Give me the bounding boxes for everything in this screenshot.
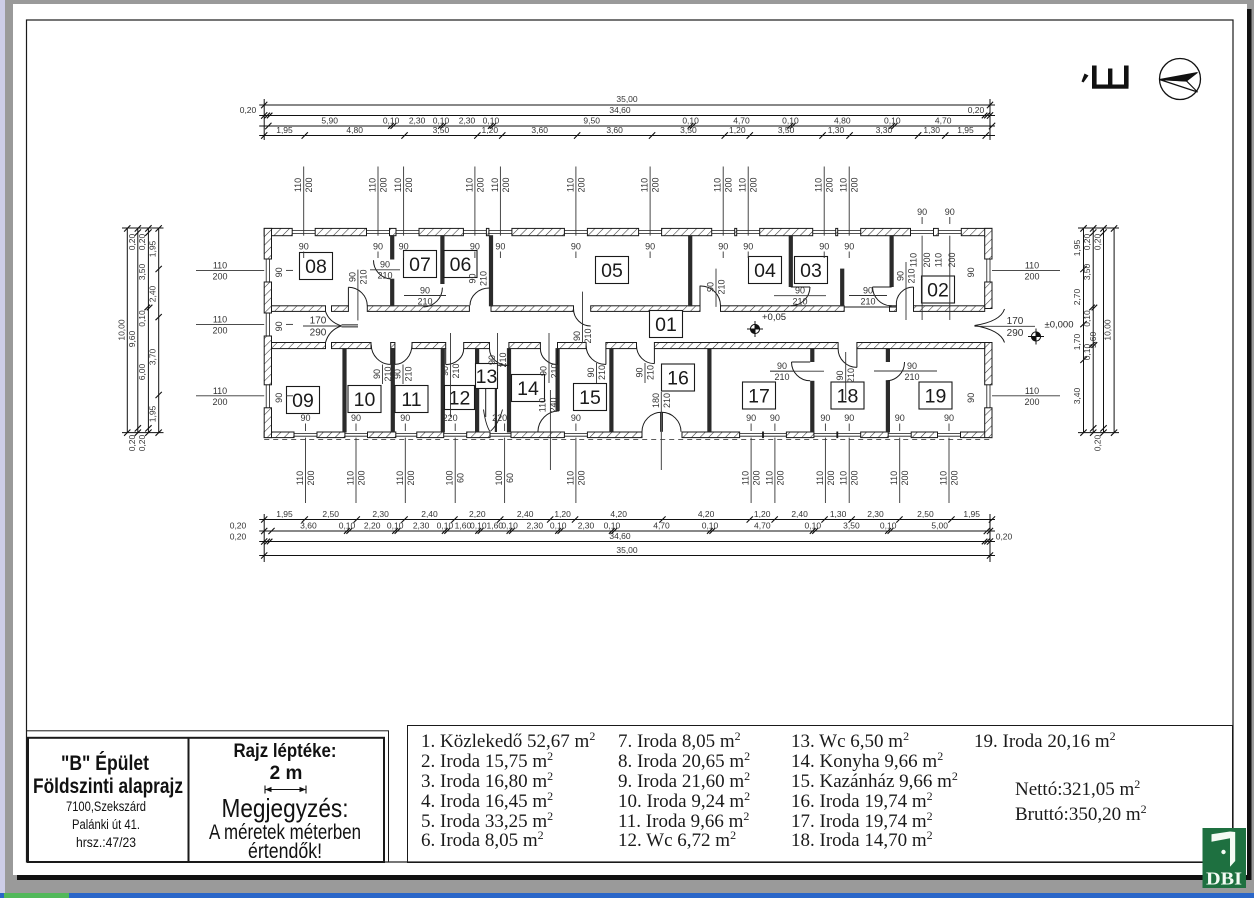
svg-text:2,50: 2,50: [322, 509, 339, 519]
svg-text:02: 02: [927, 280, 949, 302]
svg-text:14: 14: [517, 378, 539, 400]
svg-text:210: 210: [479, 271, 489, 286]
svg-text:210: 210: [583, 328, 593, 343]
svg-text:19. Iroda 20,16 m2: 19. Iroda 20,16 m2: [974, 729, 1116, 752]
svg-text:4,70: 4,70: [935, 115, 952, 125]
svg-text:0,10: 0,10: [682, 115, 699, 125]
svg-text:04: 04: [754, 260, 776, 282]
svg-text:0,10: 0,10: [604, 520, 621, 530]
svg-text:1,20: 1,20: [754, 509, 771, 519]
svg-text:03: 03: [800, 260, 822, 282]
svg-text:60: 60: [456, 473, 466, 483]
svg-text:12: 12: [449, 388, 471, 410]
svg-text:100: 100: [445, 470, 455, 485]
svg-text:3,50: 3,50: [778, 125, 795, 135]
svg-text:0,10: 0,10: [1082, 310, 1092, 327]
svg-text:200: 200: [724, 177, 734, 192]
svg-text:3,50: 3,50: [137, 263, 147, 280]
svg-text:4,70: 4,70: [653, 520, 670, 530]
svg-text:200: 200: [306, 470, 316, 485]
svg-text:1,30: 1,30: [830, 509, 847, 519]
svg-text:1,60: 1,60: [455, 520, 472, 530]
svg-text:4,70: 4,70: [754, 520, 771, 530]
svg-text:180: 180: [651, 393, 661, 408]
svg-text:90: 90: [844, 242, 854, 252]
svg-text:2,30: 2,30: [527, 520, 544, 530]
svg-text:0,20: 0,20: [127, 434, 137, 451]
svg-text:DBI: DBI: [1206, 869, 1242, 889]
svg-text:07: 07: [409, 254, 431, 276]
svg-text:9,60: 9,60: [127, 330, 137, 347]
svg-text:90: 90: [468, 273, 478, 283]
svg-text:0,20: 0,20: [1082, 233, 1092, 250]
svg-text:0,20: 0,20: [137, 233, 147, 250]
svg-text:2,30: 2,30: [413, 520, 430, 530]
svg-text:7. Iroda 8,05 m2: 7. Iroda 8,05 m2: [618, 729, 741, 752]
svg-text:2,30: 2,30: [409, 115, 426, 125]
svg-text:90: 90: [835, 370, 845, 380]
svg-text:2,30: 2,30: [867, 509, 884, 519]
svg-text:90: 90: [300, 413, 310, 423]
svg-text:110: 110: [909, 253, 919, 267]
svg-text:9,60: 9,60: [1088, 331, 1098, 348]
svg-text:12. Wc 6,72 m2: 12. Wc 6,72 m2: [618, 828, 736, 851]
svg-text:200: 200: [475, 177, 485, 192]
svg-text:200: 200: [752, 470, 762, 485]
svg-text:Palánki út 41.: Palánki út 41.: [72, 817, 140, 832]
svg-text:110: 110: [538, 398, 548, 412]
svg-text:90: 90: [470, 242, 480, 252]
svg-text:0,20: 0,20: [968, 105, 985, 115]
svg-text:110: 110: [741, 471, 751, 485]
svg-text:1,70: 1,70: [1072, 333, 1082, 350]
svg-text:210: 210: [550, 363, 560, 378]
svg-text:3,60: 3,60: [531, 125, 548, 135]
svg-text:110: 110: [839, 178, 849, 192]
svg-text:1,95: 1,95: [963, 509, 980, 519]
svg-text:09: 09: [292, 390, 314, 412]
svg-text:90: 90: [572, 331, 582, 341]
svg-text:200: 200: [357, 470, 367, 485]
svg-text:200: 200: [1024, 271, 1039, 281]
svg-text:90: 90: [844, 413, 854, 423]
svg-text:0,20: 0,20: [240, 105, 257, 115]
svg-text:16: 16: [667, 368, 689, 390]
svg-text:1,20: 1,20: [482, 125, 499, 135]
svg-text:11: 11: [401, 389, 421, 411]
svg-text:1,30: 1,30: [828, 125, 845, 135]
svg-text:90: 90: [795, 286, 805, 296]
svg-text:200: 200: [212, 271, 227, 281]
svg-text:90: 90: [895, 413, 905, 423]
svg-text:0,20: 0,20: [1093, 434, 1103, 451]
svg-text:0,20: 0,20: [996, 532, 1013, 542]
svg-text:90: 90: [944, 413, 954, 423]
svg-text:220: 220: [492, 413, 507, 423]
svg-text:200: 200: [900, 470, 910, 485]
svg-text:0,20: 0,20: [230, 520, 247, 530]
svg-text:3,40: 3,40: [1072, 387, 1082, 404]
svg-text:200: 200: [406, 470, 416, 485]
svg-text:15: 15: [579, 387, 601, 409]
svg-text:1,95: 1,95: [957, 125, 974, 135]
svg-text:210: 210: [662, 393, 672, 408]
svg-text:90: 90: [539, 366, 549, 376]
svg-text:0,10: 0,10: [137, 310, 147, 327]
svg-text:0,10: 0,10: [339, 520, 356, 530]
svg-text:2,20: 2,20: [364, 520, 381, 530]
svg-text:3,50: 3,50: [433, 125, 450, 135]
svg-text:170: 170: [310, 316, 327, 327]
svg-text:Megjegyzés:: Megjegyzés:: [222, 793, 349, 823]
svg-text:0,10: 0,10: [501, 520, 518, 530]
svg-text:210: 210: [907, 268, 917, 283]
svg-text:0,20: 0,20: [127, 233, 137, 250]
svg-text:35,00: 35,00: [616, 94, 638, 104]
svg-text:6. Iroda 8,05 m2: 6. Iroda 8,05 m2: [421, 828, 544, 851]
svg-text:290: 290: [310, 328, 327, 339]
svg-text:100: 100: [494, 470, 504, 485]
svg-text:17: 17: [748, 386, 770, 408]
svg-text:210: 210: [597, 365, 607, 380]
svg-text:0,10: 0,10: [433, 115, 450, 125]
svg-text:1,95: 1,95: [147, 240, 157, 257]
svg-text:110: 110: [368, 178, 378, 192]
svg-text:2,40: 2,40: [517, 509, 534, 519]
svg-text:90: 90: [645, 242, 655, 252]
svg-text:110: 110: [738, 178, 748, 192]
svg-text:1,95: 1,95: [1072, 239, 1082, 256]
svg-text:200: 200: [212, 325, 227, 335]
svg-text:4,20: 4,20: [610, 509, 627, 519]
svg-text:200: 200: [576, 177, 586, 192]
svg-text:1,95: 1,95: [276, 509, 293, 519]
svg-text:90: 90: [777, 361, 787, 371]
svg-text:0,10: 0,10: [782, 115, 799, 125]
svg-text:200: 200: [749, 177, 759, 192]
svg-text:34,60: 34,60: [609, 105, 631, 115]
svg-text:2,40: 2,40: [791, 509, 808, 519]
svg-text:90: 90: [863, 285, 873, 295]
svg-text:0,10: 0,10: [483, 115, 500, 125]
svg-text:14. Konyha 9,66 m2: 14. Konyha 9,66 m2: [791, 749, 943, 772]
svg-text:110: 110: [293, 178, 303, 192]
svg-text:0,10: 0,10: [437, 520, 454, 530]
svg-text:18: 18: [837, 386, 859, 408]
svg-text:110: 110: [213, 260, 227, 270]
svg-text:90: 90: [907, 361, 917, 371]
svg-text:"B" Épület: "B" Épület: [61, 752, 149, 775]
svg-text:15. Kazánház 9,66 m2: 15. Kazánház 9,66 m2: [791, 769, 958, 792]
svg-text:90: 90: [274, 393, 284, 403]
svg-text:90: 90: [373, 242, 383, 252]
svg-text:90: 90: [770, 413, 780, 423]
svg-text:06: 06: [450, 254, 472, 276]
svg-text:90: 90: [274, 267, 284, 277]
svg-text:90: 90: [571, 242, 581, 252]
svg-text:210: 210: [774, 372, 789, 382]
svg-text:200: 200: [1024, 397, 1039, 407]
svg-text:200: 200: [304, 177, 314, 192]
svg-text:90: 90: [945, 207, 955, 217]
svg-text:10,00: 10,00: [116, 319, 126, 341]
svg-text:4,70: 4,70: [733, 115, 750, 125]
svg-text:210: 210: [498, 352, 508, 367]
svg-text:0,10: 0,10: [550, 520, 567, 530]
svg-text:0,10: 0,10: [884, 115, 901, 125]
svg-text:17. Iroda 19,74 m2: 17. Iroda 19,74 m2: [791, 809, 933, 832]
svg-text:210: 210: [404, 366, 414, 381]
svg-text:110: 110: [490, 178, 500, 192]
svg-text:0,10: 0,10: [470, 520, 487, 530]
svg-text:2,30: 2,30: [578, 520, 595, 530]
svg-text:4. Iroda 16,45 m2: 4. Iroda 16,45 m2: [421, 789, 553, 812]
svg-text:5. Iroda 33,25 m2: 5. Iroda 33,25 m2: [421, 809, 553, 832]
svg-text:90: 90: [917, 207, 927, 217]
svg-text:110: 110: [393, 178, 403, 192]
svg-text:110: 110: [346, 471, 356, 485]
svg-text:200: 200: [922, 252, 932, 267]
svg-text:Rajz léptéke:: Rajz léptéke:: [234, 741, 337, 762]
svg-text:10. Iroda 9,24 m2: 10. Iroda 9,24 m2: [618, 789, 750, 812]
svg-text:5,90: 5,90: [321, 115, 338, 125]
svg-text:210: 210: [646, 365, 656, 380]
svg-text:0,10: 0,10: [880, 520, 897, 530]
svg-text:2,70: 2,70: [1072, 288, 1082, 305]
svg-text:90: 90: [571, 413, 581, 423]
svg-text:2,50: 2,50: [917, 509, 934, 519]
svg-text:90: 90: [347, 272, 357, 282]
svg-text:110: 110: [565, 471, 575, 485]
svg-text:60: 60: [505, 473, 515, 483]
svg-text:170: 170: [1007, 316, 1024, 327]
svg-text:110: 110: [213, 314, 227, 324]
svg-text:210: 210: [904, 372, 919, 382]
svg-text:90: 90: [706, 282, 716, 292]
svg-text:01: 01: [655, 314, 677, 336]
svg-text:210: 210: [377, 271, 392, 281]
svg-text:1,30: 1,30: [923, 125, 940, 135]
svg-text:2,40: 2,40: [421, 509, 438, 519]
svg-text:90: 90: [274, 321, 284, 331]
svg-text:1,20: 1,20: [729, 125, 746, 135]
svg-text:110: 110: [713, 178, 723, 192]
svg-text:210: 210: [860, 296, 875, 306]
svg-text:200: 200: [212, 397, 227, 407]
svg-text:90: 90: [400, 413, 410, 423]
svg-text:90: 90: [586, 367, 596, 377]
svg-text:9. Iroda 21,60 m2: 9. Iroda 21,60 m2: [618, 769, 750, 792]
svg-text:210: 210: [792, 297, 807, 307]
svg-text:110: 110: [939, 471, 949, 485]
svg-text:110: 110: [764, 471, 774, 485]
svg-text:200: 200: [651, 177, 661, 192]
svg-text:2,30: 2,30: [372, 509, 389, 519]
svg-text:90: 90: [743, 242, 753, 252]
svg-text:2,40: 2,40: [147, 285, 157, 302]
svg-text:110: 110: [839, 471, 849, 485]
svg-text:200: 200: [576, 470, 586, 485]
svg-text:10: 10: [354, 389, 376, 411]
svg-text:8. Iroda 20,65 m2: 8. Iroda 20,65 m2: [618, 749, 750, 772]
svg-text:±0,000: ±0,000: [1045, 320, 1074, 331]
svg-text:7100,Szekszárd: 7100,Szekszárd: [66, 799, 146, 814]
svg-text:Nettó:321,05 m2: Nettó:321,05 m2: [1015, 777, 1140, 800]
svg-text:1. Közlekedő 52,67 m2: 1. Közlekedő 52,67 m2: [421, 729, 595, 752]
svg-text:4,80: 4,80: [834, 115, 851, 125]
svg-text:200: 200: [379, 177, 389, 192]
svg-text:110: 110: [815, 471, 825, 485]
svg-text:200: 200: [404, 177, 414, 192]
svg-text:90: 90: [351, 413, 361, 423]
svg-text:05: 05: [601, 260, 623, 282]
svg-text:4,80: 4,80: [346, 125, 363, 135]
svg-text:1,95: 1,95: [276, 125, 293, 135]
svg-text:3,50: 3,50: [680, 125, 697, 135]
svg-text:0,20: 0,20: [137, 434, 147, 451]
svg-text:110: 110: [395, 471, 405, 485]
svg-text:18. Iroda 14,70 m2: 18. Iroda 14,70 m2: [791, 828, 933, 851]
svg-text:90: 90: [420, 285, 430, 295]
svg-text:210: 210: [358, 269, 368, 284]
svg-text:90: 90: [896, 271, 906, 281]
svg-text:200: 200: [825, 177, 835, 192]
svg-text:34,60: 34,60: [609, 531, 631, 541]
svg-text:2 m: 2 m: [270, 763, 303, 784]
svg-text:3,50: 3,50: [843, 520, 860, 530]
svg-text:5,00: 5,00: [931, 520, 948, 530]
svg-text:Földszinti alaprajz: Földszinti alaprajz: [33, 775, 183, 798]
svg-text:90: 90: [487, 355, 497, 365]
svg-text:2,20: 2,20: [469, 509, 486, 519]
svg-text:90: 90: [966, 393, 976, 403]
svg-text:9,50: 9,50: [583, 115, 600, 125]
svg-text:0,20: 0,20: [230, 532, 247, 542]
svg-text:210: 210: [451, 363, 461, 378]
svg-text:értendők!: értendők!: [248, 840, 322, 863]
svg-text:90: 90: [393, 369, 403, 379]
svg-text:200: 200: [950, 470, 960, 485]
svg-text:0,10: 0,10: [805, 520, 822, 530]
svg-text:6,00: 6,00: [137, 363, 147, 380]
svg-text:35,00: 35,00: [616, 545, 638, 555]
svg-text:110: 110: [213, 386, 227, 396]
svg-text:90: 90: [440, 366, 450, 376]
svg-text:90: 90: [380, 260, 390, 270]
svg-text:210: 210: [417, 296, 432, 306]
svg-text:13: 13: [476, 366, 498, 388]
svg-text:110: 110: [934, 253, 944, 267]
svg-text:3,30: 3,30: [876, 125, 893, 135]
svg-text:90: 90: [718, 242, 728, 252]
svg-text:10,00: 10,00: [1103, 319, 1113, 341]
svg-text:0,10: 0,10: [702, 520, 719, 530]
svg-text:110: 110: [889, 471, 899, 485]
svg-text:0,10: 0,10: [383, 115, 400, 125]
svg-text:90: 90: [495, 242, 505, 252]
svg-text:110: 110: [464, 178, 474, 192]
svg-text:4,20: 4,20: [698, 509, 715, 519]
svg-text:110: 110: [814, 178, 824, 192]
svg-text:110: 110: [295, 471, 305, 485]
svg-text:210: 210: [717, 279, 727, 294]
svg-text:90: 90: [819, 242, 829, 252]
svg-text:90: 90: [820, 413, 830, 423]
svg-text:19: 19: [925, 386, 947, 408]
svg-text:3,60: 3,60: [300, 520, 317, 530]
svg-text:200: 200: [775, 470, 785, 485]
svg-text:Bruttó:350,20 m2: Bruttó:350,20 m2: [1015, 802, 1147, 825]
svg-text:110: 110: [1025, 260, 1039, 270]
svg-text:3. Iroda 16,80 m2: 3. Iroda 16,80 m2: [421, 769, 553, 792]
svg-text:2,30: 2,30: [459, 115, 476, 125]
svg-text:200: 200: [850, 177, 860, 192]
svg-text:290: 290: [1007, 328, 1024, 339]
svg-text:200: 200: [947, 252, 957, 267]
svg-text:0,20: 0,20: [1093, 233, 1103, 250]
svg-text:08: 08: [305, 256, 327, 278]
svg-text:90: 90: [399, 242, 409, 252]
svg-text:210: 210: [383, 366, 393, 381]
svg-text:200: 200: [850, 470, 860, 485]
svg-text:13. Wc 6,50 m2: 13. Wc 6,50 m2: [791, 729, 909, 752]
svg-text:3,50: 3,50: [1082, 263, 1092, 280]
svg-text:90: 90: [635, 367, 645, 377]
svg-text:16. Iroda 19,74 m2: 16. Iroda 19,74 m2: [791, 789, 933, 812]
svg-text:1,20: 1,20: [554, 509, 571, 519]
svg-text:2. Iroda 15,75 m2: 2. Iroda 15,75 m2: [421, 749, 553, 772]
svg-text:90: 90: [966, 267, 976, 277]
svg-text:90: 90: [746, 413, 756, 423]
svg-text:110: 110: [1025, 386, 1039, 396]
svg-text:110: 110: [565, 178, 575, 192]
svg-text:0,10: 0,10: [387, 520, 404, 530]
svg-text:3,60: 3,60: [606, 125, 623, 135]
svg-text:200: 200: [501, 177, 511, 192]
svg-text:110: 110: [640, 178, 650, 192]
svg-text:1,95: 1,95: [147, 405, 157, 422]
svg-text:90: 90: [372, 369, 382, 379]
svg-text:200: 200: [826, 470, 836, 485]
svg-text:+0,05: +0,05: [762, 312, 786, 323]
svg-text:hrsz.:47/23: hrsz.:47/23: [76, 835, 136, 850]
svg-text:210: 210: [846, 368, 856, 383]
svg-text:3,70: 3,70: [147, 348, 157, 365]
svg-text:90: 90: [299, 242, 309, 252]
